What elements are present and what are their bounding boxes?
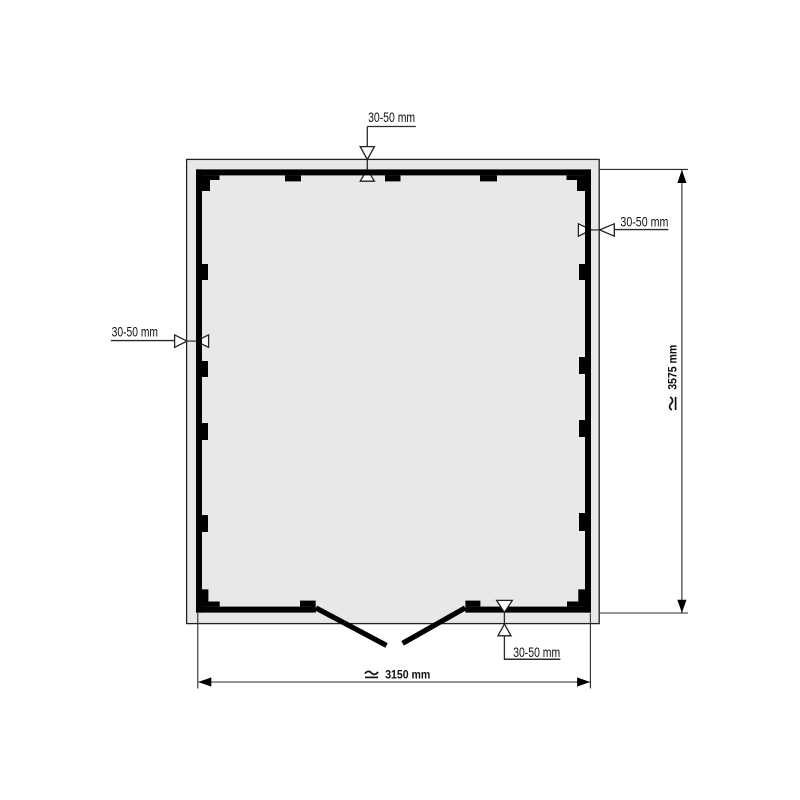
svg-text:3150 mm: 3150 mm <box>385 667 430 681</box>
svg-text:3575 mm: 3575 mm <box>666 345 680 390</box>
svg-text:30-50 mm: 30-50 mm <box>620 213 668 229</box>
svg-text:30-50 mm: 30-50 mm <box>513 644 560 660</box>
svg-text:30-50 mm: 30-50 mm <box>112 324 158 340</box>
svg-text:30-50 mm: 30-50 mm <box>368 109 415 125</box>
